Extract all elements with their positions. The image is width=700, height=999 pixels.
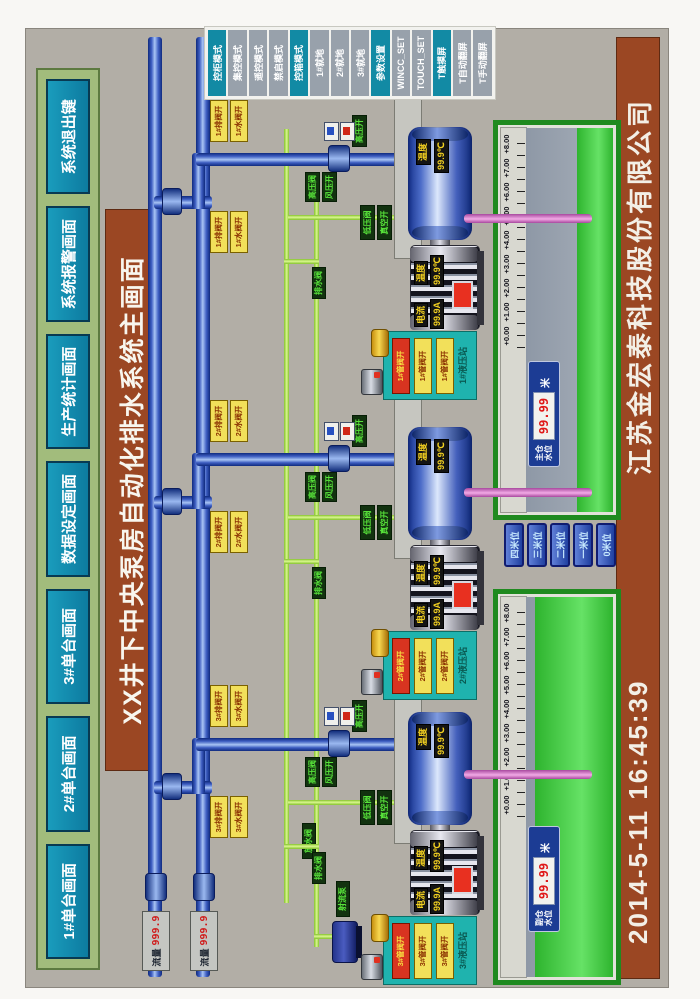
pump-unit: 1#排阀开 1#水阀开 1#排阀开 1#水阀开 高压阀 风压开 低压阀 真空开 … — [100, 79, 480, 409]
hp-valve-label: 高压阀 — [305, 472, 320, 502]
toolbar-button[interactable]: 系统报警画面 — [46, 206, 90, 321]
mode-menu: 控柜模式集控模式遥控模式禁启模式控箱模式1#就地2#就地3#就地参数设置WINC… — [204, 26, 496, 100]
pressure-transmitter-icon — [340, 422, 355, 441]
accumulator-cylinder-icon — [371, 329, 389, 357]
water-level-value: 99.99 — [533, 392, 555, 440]
menu-item[interactable]: 集控模式 — [228, 30, 246, 96]
valve-status-label: 2#排阀开 — [210, 400, 228, 442]
valve-status-label: 3#水阀开 — [230, 685, 248, 727]
flow-meter-label: 流量 — [150, 949, 163, 967]
drain-valve-label: 排水阀 — [312, 852, 326, 884]
menu-item[interactable]: 控箱模式 — [290, 30, 308, 96]
discharge-valve — [328, 730, 350, 757]
valve-status-label: 2#排阀开 — [210, 511, 228, 553]
drain-valve-label: 排水阀 — [312, 267, 326, 299]
level-scale-labels: +8.00+7.00+6.00+5.00+4.00+3.00+2.00+1.00… — [502, 601, 513, 817]
pump-end-cap — [412, 226, 468, 239]
valve-status-label: 2#水阀开 — [230, 400, 248, 442]
motor-base — [477, 551, 484, 625]
motor-end-cap — [410, 832, 478, 847]
valve-status-label: 3#排阀开 — [210, 685, 228, 727]
water-level-unit: 米 — [537, 378, 552, 388]
pressure-transmitter-icon — [324, 122, 339, 141]
scale-tick-label: +2.00 — [502, 276, 513, 300]
flow-meter: 流量 999.9 — [190, 911, 218, 971]
level-scale-ruler: +8.00+7.00+6.00+5.00+4.00+3.00+2.00+1.00… — [500, 596, 527, 978]
water-level-display: 副仓水位 99.99 米 — [528, 826, 560, 932]
drain-branch-pipe — [284, 559, 319, 564]
discharge-valve — [328, 445, 350, 472]
level-mark-button[interactable]: 0米位 — [596, 523, 616, 567]
hydraulic-pump-motor-icon — [361, 669, 383, 695]
hydraulic-station: 2#管阀开 2#管阀开 2#管阀开 2#液压站 — [383, 631, 477, 700]
pump-temp-label: 温度 — [416, 139, 431, 165]
menu-item[interactable]: T触摸屏 — [433, 30, 451, 96]
level-mark-buttons: 四米位三米位二米位一米位0米位 — [504, 523, 616, 567]
scale-tick-label: +4.00 — [502, 697, 513, 721]
branch-valve — [162, 773, 182, 800]
pump-temp-value: 99.9℃ — [434, 439, 449, 473]
menu-item[interactable]: 2#就地 — [331, 30, 349, 96]
motor-alarm-indicator — [452, 581, 473, 609]
discharge-pipe — [196, 153, 408, 166]
branch-valve — [162, 188, 182, 215]
hydraulic-pump-motor-icon — [361, 954, 383, 980]
station-valve-label: 1#管阀开 — [414, 338, 432, 394]
level-mark-button[interactable]: 一米位 — [573, 523, 593, 567]
pump-temp-value: 99.9℃ — [434, 139, 449, 173]
aux-sump-tank: +8.00+7.00+6.00+5.00+4.00+3.00+2.00+1.00… — [493, 589, 621, 985]
motor-current-value: 99.9A — [430, 884, 444, 914]
pump-unit: 2#排阀开 2#水阀开 2#排阀开 2#水阀开 高压阀 风压开 低压阀 真空开 … — [100, 379, 480, 709]
screen-background: 1#单台画面2#单台画面3#单台画面数据设定画面生产统计画面系统报警画面系统退出… — [26, 29, 668, 987]
valve-status-label: 1#水阀开 — [230, 100, 248, 142]
menu-item[interactable]: T自动翻屏 — [453, 30, 471, 96]
pressure-transmitter-icon — [340, 707, 355, 726]
bottom-bar: 2014-5-11 16:45:39 江苏金宏泰科技股份有限公司 — [616, 37, 660, 979]
pressure-transmitter-icon — [324, 707, 339, 726]
motor-temp-label: 温度 — [414, 561, 428, 585]
menu-item[interactable]: 参数设置 — [371, 30, 389, 96]
pump-end-cap — [412, 811, 468, 824]
hp-valve-label: 高压阀 — [305, 757, 320, 787]
motor-base — [477, 836, 484, 910]
valve-status-label: 1#水阀开 — [230, 211, 248, 253]
lp-valve-label: 真空开 — [377, 205, 392, 240]
station-name: 3#液压站 — [456, 917, 469, 984]
flow-meter-value: 999.9 — [151, 915, 162, 945]
pressure-transmitter-icon — [324, 422, 339, 441]
station-valve-label: 1#管阀开 — [392, 338, 410, 394]
scale-tick-label: +3.00 — [502, 252, 513, 276]
hp-valve-label: 高压阀 — [305, 172, 320, 202]
lp-valve-label: 低压阀 — [360, 205, 375, 240]
motor-temp-value: 99.9℃ — [430, 555, 444, 587]
motor-temp-value: 99.9℃ — [430, 255, 444, 287]
flow-meter: 流量 999.9 — [142, 911, 170, 971]
pump-end-cap — [412, 526, 468, 539]
motor-temp-label: 温度 — [414, 846, 428, 870]
pressure-transmitter-icon — [340, 122, 355, 141]
scale-tick-label: +8.00 — [502, 132, 513, 156]
motor-base — [477, 251, 484, 325]
water-level-display: 主仓水位 99.99 米 — [528, 361, 560, 467]
hydraulic-station: 3#管阀开 3#管阀开 3#管阀开 3#液压站 — [383, 916, 477, 985]
toolbar-button[interactable]: 生产统计画面 — [46, 334, 90, 449]
motor-temp-label: 温度 — [414, 261, 428, 285]
motor-alarm-indicator — [452, 281, 473, 309]
scale-tick-label: +1.00 — [502, 300, 513, 324]
lp-valve-label: 低压阀 — [360, 790, 375, 825]
company-name: 江苏金宏泰科技股份有限公司 — [620, 98, 657, 475]
station-valve-label: 3#管阀开 — [414, 923, 432, 979]
motor-current-label: 电流 — [414, 888, 428, 912]
accumulator-cylinder-icon — [371, 914, 389, 942]
motor-current-value: 99.9A — [430, 599, 444, 629]
lp-valve-label: 低压阀 — [360, 505, 375, 540]
menu-item[interactable]: T手动翻屏 — [473, 30, 491, 96]
main-sump-tank: +8.00+7.00+6.00+5.00+4.00+3.00+2.00+1.00… — [493, 120, 621, 520]
drain-branch-pipe — [284, 844, 319, 849]
flow-meter-label: 流量 — [198, 949, 211, 967]
level-mark-button[interactable]: 二米位 — [550, 523, 570, 567]
menu-item[interactable]: 3#就地 — [351, 30, 369, 96]
motor-temp-value: 99.9℃ — [430, 840, 444, 872]
scada-main-screen: 1#单台画面2#单台画面3#单台画面数据设定画面生产统计画面系统报警画面系统退出… — [0, 0, 700, 999]
suction-pipe-2 — [464, 488, 592, 497]
scale-tick-label: +4.00 — [502, 228, 513, 252]
scale-tick-label: +6.00 — [502, 180, 513, 204]
scale-tick-label: +2.00 — [502, 745, 513, 769]
toolbar-button[interactable]: 系统退出键 — [46, 79, 90, 194]
pump-temp-value: 99.9℃ — [434, 724, 449, 758]
station-name: 1#液压站 — [456, 332, 469, 399]
station-name: 2#液压站 — [456, 632, 469, 699]
menu-item[interactable]: TOUCH_SET — [412, 30, 430, 96]
drain-valve-label: 排水阀 — [312, 567, 326, 599]
valve-status-label: 1#排阀开 — [210, 211, 228, 253]
drain-branch-pipe — [284, 259, 319, 264]
hydraulic-pump-motor-icon — [361, 369, 383, 395]
scale-tick-label: +5.00 — [502, 673, 513, 697]
hp-valve-label: 风压开 — [322, 757, 337, 787]
level-mark-button[interactable]: 四米位 — [504, 523, 524, 567]
level-scale-ruler: +8.00+7.00+6.00+5.00+4.00+3.00+2.00+1.00… — [500, 127, 527, 513]
suction-pipe-3 — [464, 770, 592, 779]
station-valve-label: 2#管阀开 — [436, 638, 454, 694]
pump-temp-label: 温度 — [416, 439, 431, 465]
discharge-pipe — [196, 453, 408, 466]
station-valve-label: 1#管阀开 — [436, 338, 454, 394]
water-level-unit: 米 — [537, 843, 552, 853]
toolbar: 1#单台画面2#单台画面3#单台画面数据设定画面生产统计画面系统报警画面系统退出… — [36, 68, 100, 970]
menu-item[interactable]: WINCC_SET — [392, 30, 410, 96]
motor-current-value: 99.9A — [430, 299, 444, 329]
water-level-name: 主仓水位 — [535, 444, 553, 462]
flow-meter-value: 999.9 — [199, 915, 210, 945]
scale-tick-label: +6.00 — [502, 649, 513, 673]
valve-status-label: 2#水阀开 — [230, 511, 248, 553]
toolbar-button[interactable]: 2#单台画面 — [46, 716, 90, 831]
valve-status-label: 3#水阀开 — [230, 796, 248, 838]
level-scale-ticks — [517, 601, 525, 817]
hydraulic-station: 1#管阀开 1#管阀开 1#管阀开 1#液压站 — [383, 331, 477, 400]
toolbar-button[interactable]: 数据设定画面 — [46, 461, 90, 576]
menu-item[interactable]: 1#就地 — [310, 30, 328, 96]
toolbar-button[interactable]: 1#单台画面 — [46, 844, 90, 959]
hp-valve-label: 风压开 — [322, 172, 337, 202]
motor-end-cap — [410, 247, 478, 262]
valve-status-label: 3#排阀开 — [210, 796, 228, 838]
motor-current-label: 电流 — [414, 303, 428, 327]
discharge-valve — [328, 145, 350, 172]
menu-item[interactable]: 禁启模式 — [269, 30, 287, 96]
scale-tick-label: +7.00 — [502, 625, 513, 649]
hp-valve-label: 风压开 — [322, 472, 337, 502]
discharge-pipe — [196, 738, 408, 751]
scale-tick-label: +8.00 — [502, 601, 513, 625]
pump-temp-label: 温度 — [416, 724, 431, 750]
scale-tick-label: +0.00 — [502, 324, 513, 348]
toolbar-button[interactable]: 3#单台画面 — [46, 589, 90, 704]
station-valve-label: 2#管阀开 — [414, 638, 432, 694]
sump-water-fill — [577, 128, 613, 512]
motor-end-cap — [410, 547, 478, 562]
level-scale-ticks — [517, 132, 525, 348]
motor-alarm-indicator — [452, 866, 473, 894]
station-valve-label: 3#管阀开 — [436, 923, 454, 979]
level-scale-labels: +8.00+7.00+6.00+5.00+4.00+3.00+2.00+1.00… — [502, 132, 513, 348]
motor-current-label: 电流 — [414, 603, 428, 627]
scale-tick-label: +3.00 — [502, 721, 513, 745]
station-valve-label: 3#管阀开 — [392, 923, 410, 979]
water-level-value: 99.99 — [533, 857, 555, 905]
menu-item[interactable]: 遥控模式 — [249, 30, 267, 96]
branch-valve — [162, 488, 182, 515]
lp-valve-label: 真空开 — [377, 790, 392, 825]
datetime-display: 2014-5-11 16:45:39 — [623, 680, 654, 944]
accumulator-cylinder-icon — [371, 629, 389, 657]
scale-tick-label: +0.00 — [502, 793, 513, 817]
scale-tick-label: +7.00 — [502, 156, 513, 180]
suction-pipe-1 — [464, 214, 592, 223]
lp-valve-label: 真空开 — [377, 505, 392, 540]
level-mark-button[interactable]: 三米位 — [527, 523, 547, 567]
water-level-name: 副仓水位 — [535, 909, 553, 927]
menu-item[interactable]: 控柜模式 — [208, 30, 226, 96]
valve-status-label: 1#排阀开 — [210, 100, 228, 142]
jet-pump — [332, 921, 358, 963]
station-valve-label: 2#管阀开 — [392, 638, 410, 694]
